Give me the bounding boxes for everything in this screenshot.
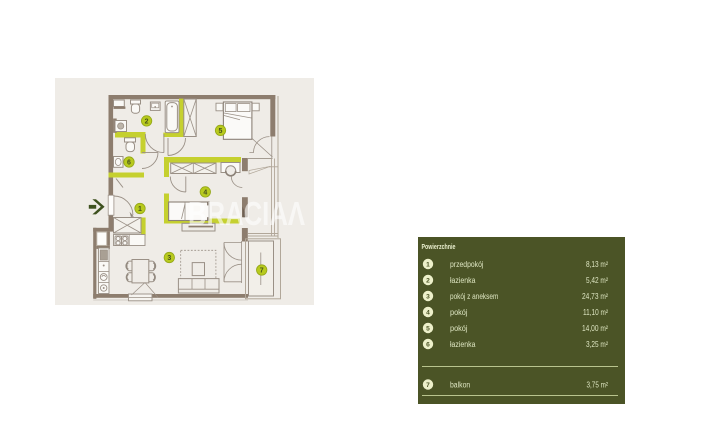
svg-text:5: 5 bbox=[426, 325, 430, 332]
svg-text:7: 7 bbox=[426, 382, 430, 389]
svg-text:Powierzchnie: Powierzchnie bbox=[422, 242, 456, 251]
svg-text:5,42 m²: 5,42 m² bbox=[586, 276, 608, 285]
svg-text:4: 4 bbox=[426, 309, 430, 316]
svg-text:3: 3 bbox=[167, 255, 171, 262]
svg-text:3: 3 bbox=[426, 293, 430, 300]
svg-text:24,73 m²: 24,73 m² bbox=[582, 292, 608, 301]
svg-text:4: 4 bbox=[203, 189, 207, 196]
svg-text:14,00 m²: 14,00 m² bbox=[582, 324, 608, 333]
svg-text:6: 6 bbox=[426, 341, 430, 348]
svg-text:2: 2 bbox=[145, 118, 149, 125]
svg-text:pokój: pokój bbox=[450, 324, 468, 333]
svg-text:8,13 m²: 8,13 m² bbox=[586, 260, 608, 269]
svg-text:pokój z aneksem: pokój z aneksem bbox=[450, 292, 499, 301]
svg-text:3,25 m²: 3,25 m² bbox=[586, 340, 608, 349]
svg-text:1: 1 bbox=[426, 261, 430, 268]
svg-text:5: 5 bbox=[219, 128, 223, 135]
svg-text:BRACIAΛ: BRACIAΛ bbox=[188, 196, 305, 233]
svg-text:balkon: balkon bbox=[450, 380, 470, 389]
svg-text:łazienka: łazienka bbox=[450, 276, 476, 285]
svg-text:2: 2 bbox=[426, 277, 430, 284]
svg-text:6: 6 bbox=[127, 160, 131, 167]
svg-text:7: 7 bbox=[260, 268, 264, 275]
svg-text:11,10 m²: 11,10 m² bbox=[583, 308, 608, 317]
svg-text:3,75 m²: 3,75 m² bbox=[587, 380, 609, 389]
svg-text:1: 1 bbox=[138, 206, 142, 213]
svg-text:przedpokój: przedpokój bbox=[450, 260, 484, 269]
svg-text:pokój: pokój bbox=[450, 308, 468, 317]
svg-text:łazienka: łazienka bbox=[450, 340, 476, 349]
